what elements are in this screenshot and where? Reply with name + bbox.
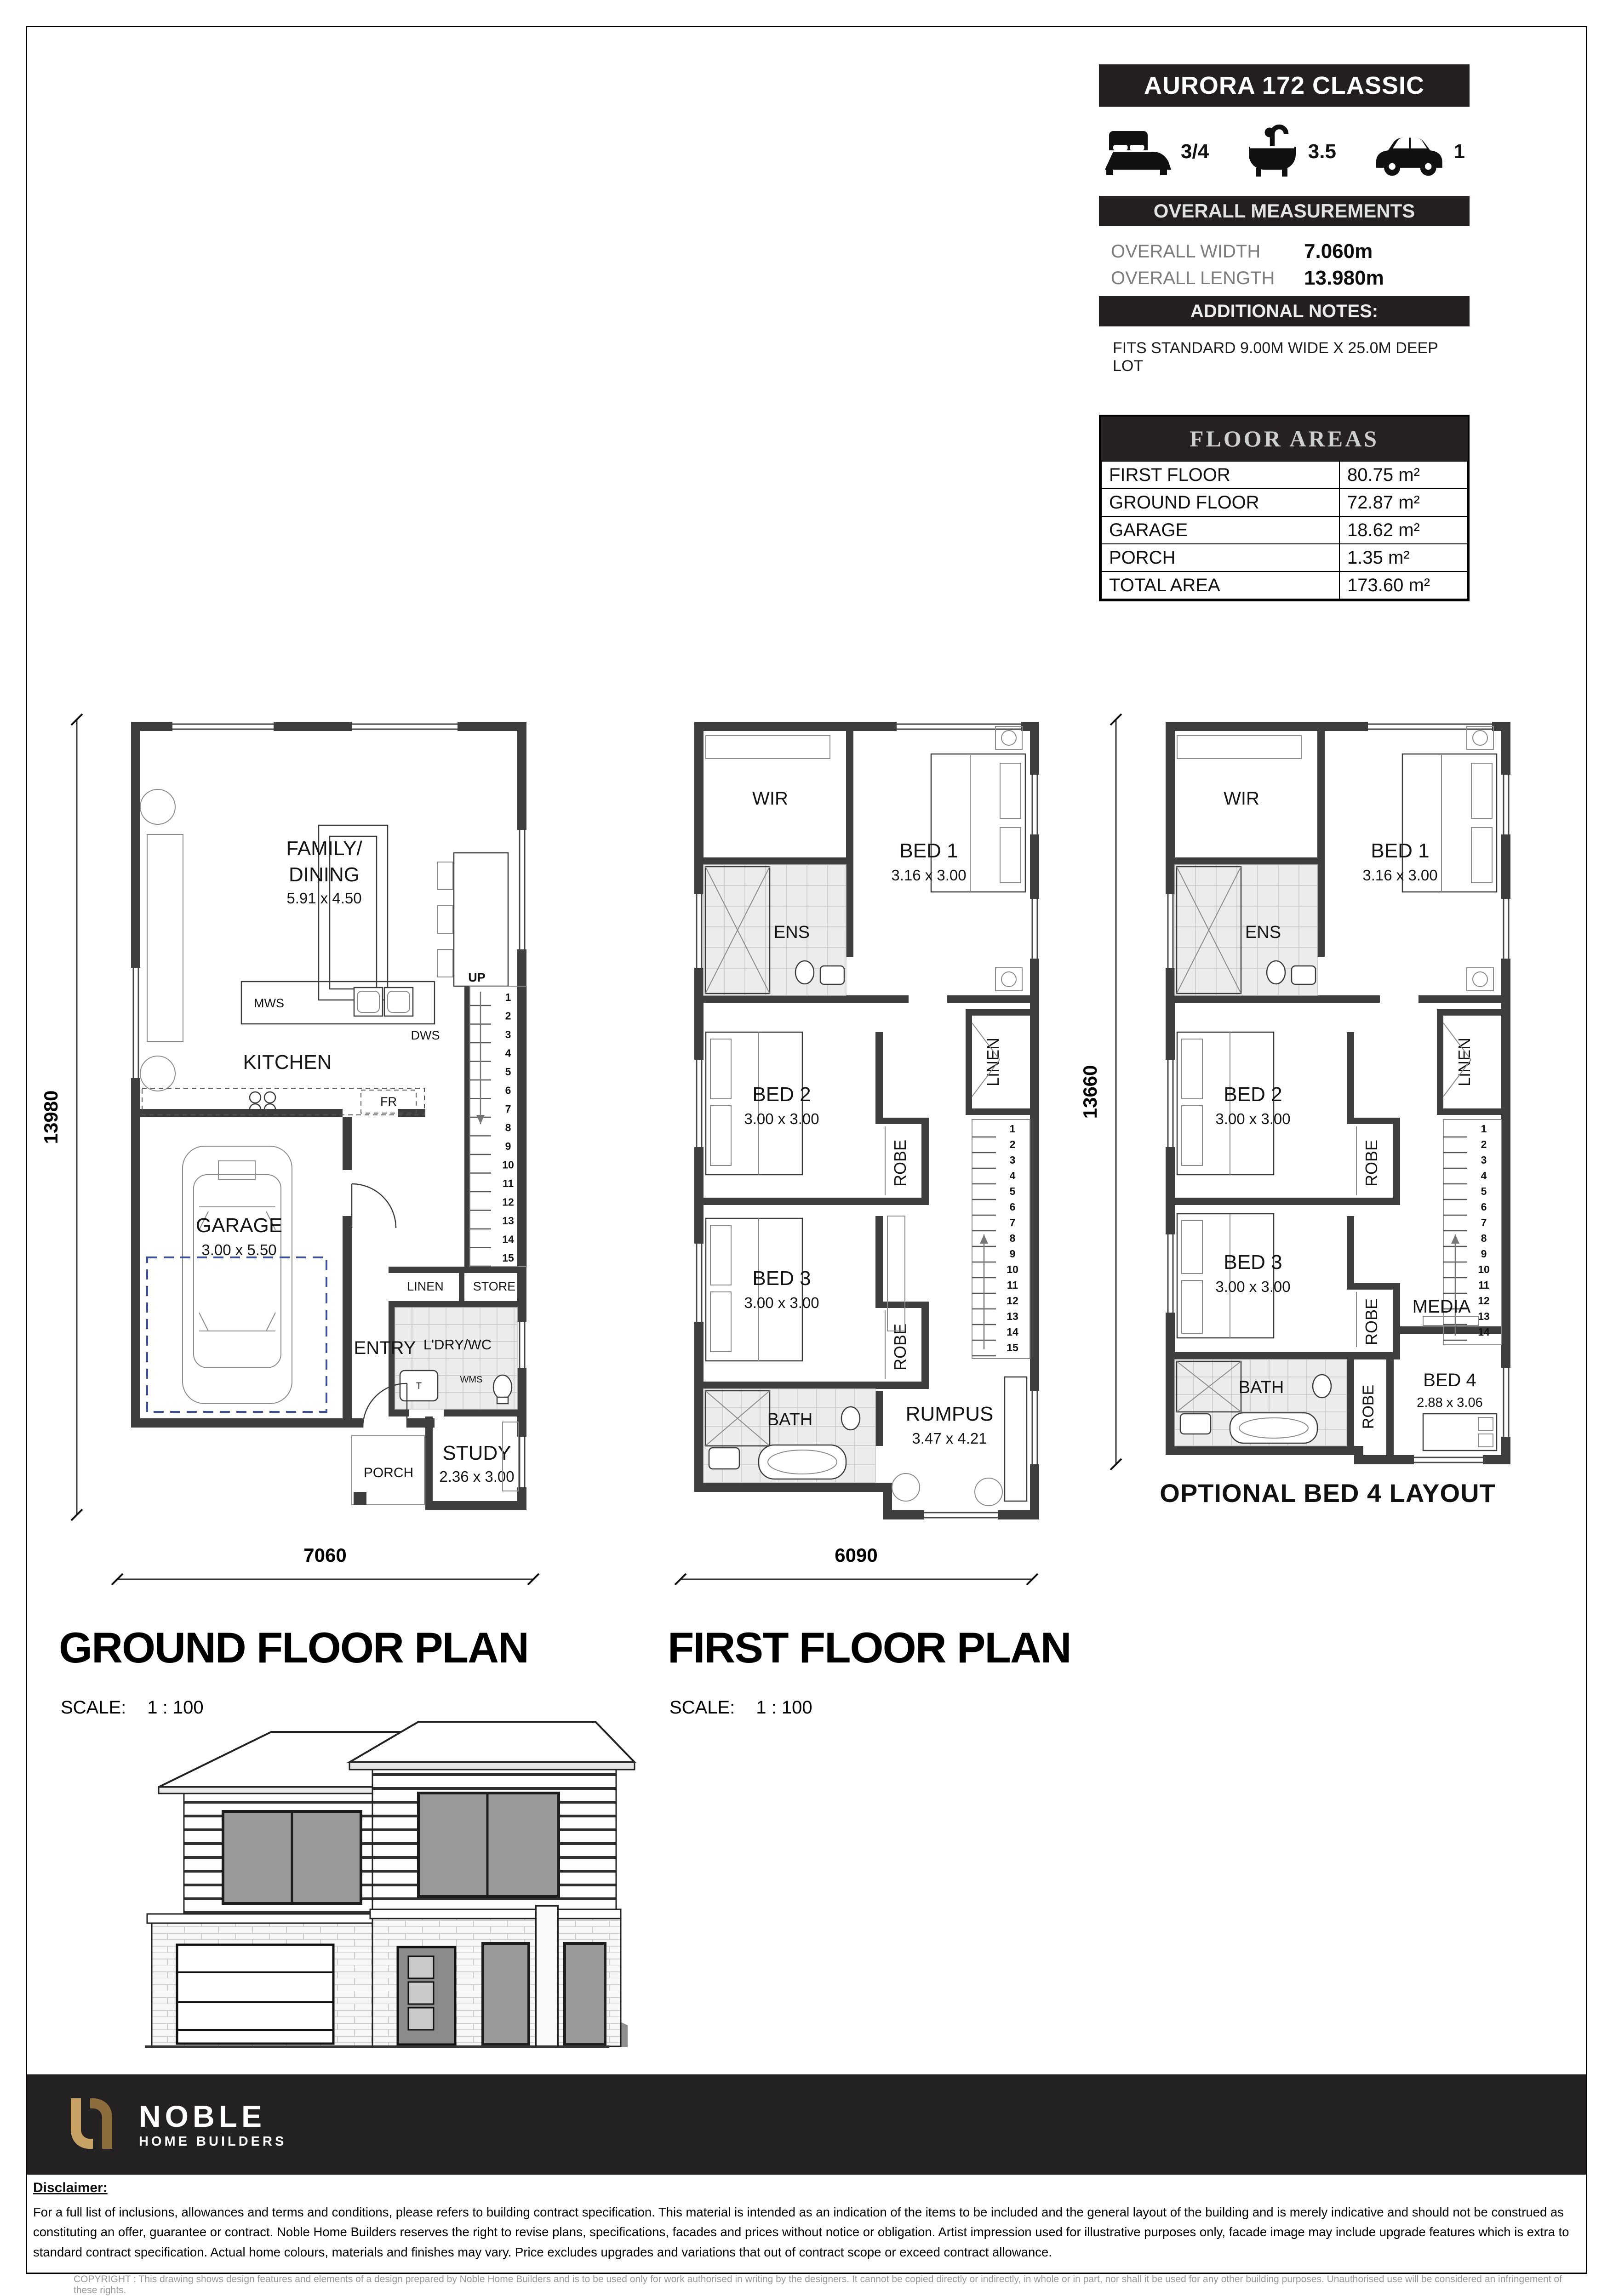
floor-areas-box: FLOOR AREAS FIRST FLOOR 80.75 m² GROUND … bbox=[1099, 415, 1470, 601]
overall-width-row: OVERALL WIDTH 7.060m bbox=[1111, 238, 1470, 265]
optional-height-dimension: 13660 bbox=[1078, 713, 1133, 1471]
sink bbox=[354, 988, 383, 1016]
room-label: ENS bbox=[1245, 923, 1281, 942]
additional-notes-text: FITS STANDARD 9.00M WIDE X 25.0M DEEP LO… bbox=[1099, 326, 1470, 403]
study: STUDY 2.36 x 3.00 bbox=[439, 1422, 518, 1491]
svg-text:1: 1 bbox=[1481, 1123, 1487, 1135]
area-value: 72.87 m² bbox=[1339, 489, 1467, 516]
bedrooms-value: 3/4 bbox=[1181, 140, 1209, 163]
overall-length-label: OVERALL LENGTH bbox=[1111, 268, 1304, 289]
toilet bbox=[841, 1407, 860, 1430]
basin bbox=[709, 1448, 739, 1469]
svg-text:3: 3 bbox=[1010, 1154, 1016, 1166]
stats-row: 3/4 3.5 1 bbox=[1099, 107, 1470, 193]
svg-text:9: 9 bbox=[505, 1140, 511, 1152]
ensuite: ENS bbox=[1175, 865, 1317, 995]
svg-text:13: 13 bbox=[1478, 1310, 1490, 1322]
bed bbox=[1423, 1414, 1497, 1451]
car-outline bbox=[183, 1146, 292, 1404]
svg-text:5: 5 bbox=[505, 1066, 511, 1078]
room-size: 3.00 x 5.50 bbox=[201, 1241, 276, 1258]
dimension-value: 7060 bbox=[303, 1544, 346, 1566]
room-label: KITCHEN bbox=[243, 1051, 332, 1074]
room-label: RUMPUS bbox=[906, 1403, 994, 1425]
design-title: AURORA 172 CLASSIC bbox=[1099, 64, 1470, 107]
info-panel: AURORA 172 CLASSIC 3/4 3 bbox=[1099, 64, 1470, 601]
wir: WIR bbox=[706, 736, 830, 809]
bed1-room: BED 1 3.16 x 3.00 bbox=[1362, 726, 1497, 991]
basin bbox=[1180, 1414, 1211, 1434]
area-value: 80.75 m² bbox=[1339, 461, 1467, 489]
door-arc bbox=[352, 1184, 396, 1228]
overall-width-label: OVERALL WIDTH bbox=[1111, 241, 1304, 262]
stair-treads: 123456789101112131415 bbox=[470, 991, 514, 1266]
roof-right bbox=[349, 1722, 635, 1762]
svg-text:2: 2 bbox=[1481, 1138, 1487, 1150]
garage-value: 1 bbox=[1454, 140, 1465, 163]
plant-symbol bbox=[140, 789, 175, 824]
store-label: STORE bbox=[473, 1279, 516, 1293]
area-label: GROUND FLOOR bbox=[1101, 489, 1339, 516]
ensuite: ENS bbox=[704, 865, 846, 995]
toilet bbox=[1313, 1375, 1331, 1398]
robe-label: ROBE bbox=[1360, 1385, 1377, 1429]
svg-text:2: 2 bbox=[1010, 1138, 1016, 1150]
facade-elevation-image bbox=[133, 1708, 637, 2050]
bed4-room: BED 4 2.88 x 3.06 ROBE bbox=[1360, 1370, 1497, 1451]
porch-post bbox=[354, 1492, 366, 1505]
svg-text:1: 1 bbox=[1010, 1123, 1016, 1135]
cabinet bbox=[147, 834, 183, 1041]
svg-text:9: 9 bbox=[1010, 1248, 1016, 1260]
tall-window bbox=[483, 1943, 529, 2045]
sofa bbox=[1005, 1377, 1027, 1501]
car-icon bbox=[1372, 126, 1446, 177]
area-value: 173.60 m² bbox=[1339, 571, 1467, 599]
up-label: UP bbox=[468, 971, 486, 984]
room-label: BED 1 bbox=[899, 840, 958, 862]
svg-text:5: 5 bbox=[1481, 1185, 1487, 1197]
toilet bbox=[795, 961, 814, 984]
stair-treads: 123456789101112131415 bbox=[972, 1123, 1018, 1356]
area-value: 18.62 m² bbox=[1339, 516, 1467, 544]
toilet bbox=[1267, 961, 1285, 984]
robe-label: ROBE bbox=[1362, 1298, 1381, 1345]
table-row: GROUND FLOOR 72.87 m² bbox=[1101, 489, 1467, 516]
linen-label: LINEN bbox=[407, 1279, 444, 1293]
scale-value: 1 : 100 bbox=[756, 1697, 812, 1718]
table-row: PORCH 1.35 m² bbox=[1101, 544, 1467, 571]
room-label: BATH bbox=[1239, 1378, 1284, 1397]
optional-floor-plan-drawing: WIR ENS BED 1 3.16 x 3.00 BED 2 3.00 x 3… bbox=[1138, 710, 1517, 1478]
family-dining-room: FAMILY/ DINING 5.91 x 4.50 bbox=[140, 789, 508, 1091]
svg-text:14: 14 bbox=[502, 1234, 514, 1245]
first-floor-plan-drawing: WIR ENS BED 1 3.16 x 3.00 BED 2 3.00 x 3… bbox=[667, 710, 1046, 1538]
optional-caption: OPTIONAL BED 4 LAYOUT bbox=[1138, 1478, 1517, 1508]
first-floor-title: FIRST FLOOR PLAN bbox=[668, 1623, 1071, 1673]
svg-text:7: 7 bbox=[505, 1103, 511, 1115]
porch-label: PORCH bbox=[364, 1465, 413, 1480]
room-size: 3.00 x 3.00 bbox=[1215, 1110, 1290, 1127]
room-label: BATH bbox=[767, 1410, 813, 1429]
area-label: GARAGE bbox=[1101, 516, 1339, 544]
plant-symbol bbox=[892, 1474, 920, 1501]
ground-line bbox=[145, 2045, 609, 2048]
additional-notes-header: ADDITIONAL NOTES: bbox=[1099, 296, 1470, 326]
linen-label: LINEN bbox=[1455, 1038, 1474, 1086]
robe-label: ROBE bbox=[891, 1140, 909, 1187]
staircase: 123456789101112131415 bbox=[972, 1119, 1030, 1359]
table-row: TOTAL AREA 173.60 m² bbox=[1101, 571, 1467, 599]
overall-length-value: 13.980m bbox=[1304, 267, 1384, 290]
wms-label: WMS bbox=[460, 1375, 483, 1385]
room-size: 3.16 x 3.00 bbox=[1362, 867, 1437, 884]
noble-monogram-icon bbox=[57, 2090, 126, 2159]
svg-text:4: 4 bbox=[505, 1047, 511, 1059]
garage: GARAGE 3.00 x 5.50 bbox=[147, 1146, 396, 1412]
svg-text:7: 7 bbox=[1010, 1217, 1016, 1228]
plan-sheet-page: { "panel": { "title": "AURORA 172 CLASSI… bbox=[0, 0, 1613, 2281]
bedrooms-stat: 3/4 bbox=[1104, 127, 1209, 177]
svg-text:8: 8 bbox=[1010, 1232, 1016, 1244]
svg-text:11: 11 bbox=[503, 1177, 514, 1189]
tall-window bbox=[565, 1943, 605, 2045]
bed-icon bbox=[1104, 127, 1173, 177]
ground-floor-title: GROUND FLOOR PLAN bbox=[59, 1623, 528, 1673]
first-scale: SCALE:1 : 100 bbox=[669, 1697, 812, 1718]
brand-logo: NOBLE HOME BUILDERS bbox=[57, 2090, 286, 2159]
wir: WIR bbox=[1177, 736, 1301, 809]
first-width-dimension: 6090 bbox=[667, 1542, 1046, 1595]
dimension-value: 13660 bbox=[1079, 1065, 1101, 1119]
pier bbox=[536, 1906, 558, 2046]
basin bbox=[820, 966, 844, 984]
room-label: WIR bbox=[752, 788, 788, 809]
svg-text:7: 7 bbox=[1481, 1217, 1487, 1228]
basin bbox=[1292, 966, 1316, 984]
room-size: 3.16 x 3.00 bbox=[891, 867, 966, 884]
media: MEDIA bbox=[1413, 1296, 1478, 1325]
room-label: MEDIA bbox=[1413, 1296, 1471, 1317]
robe-label: ROBE bbox=[1362, 1140, 1381, 1187]
room-label: ENS bbox=[774, 923, 810, 942]
garage-door bbox=[177, 1945, 333, 2044]
scale-label: SCALE: bbox=[669, 1697, 735, 1718]
mws-label: MWS bbox=[254, 996, 284, 1010]
table-row: FIRST FLOOR 80.75 m² bbox=[1101, 461, 1467, 489]
brand-text: NOBLE HOME BUILDERS bbox=[139, 2101, 286, 2148]
room-label: BED 3 bbox=[752, 1267, 811, 1290]
room-label: GARAGE bbox=[196, 1214, 282, 1237]
area-value: 1.35 m² bbox=[1339, 544, 1467, 571]
room-size: 3.00 x 3.00 bbox=[1215, 1278, 1290, 1295]
dimension-value: 13980 bbox=[40, 1091, 62, 1144]
room-label: WIR bbox=[1224, 788, 1259, 809]
brand-subtitle: HOME BUILDERS bbox=[139, 2135, 286, 2148]
dws-label: DWS bbox=[411, 1028, 440, 1042]
svg-text:2: 2 bbox=[505, 1010, 511, 1022]
bed bbox=[706, 1218, 802, 1361]
svg-text:15: 15 bbox=[1007, 1342, 1018, 1354]
svg-text:11: 11 bbox=[1478, 1279, 1490, 1291]
svg-text:8: 8 bbox=[505, 1122, 511, 1134]
svg-text:10: 10 bbox=[1478, 1263, 1490, 1275]
overall-width-value: 7.060m bbox=[1304, 240, 1373, 263]
room-size: 5.91 x 4.50 bbox=[286, 890, 361, 907]
area-label: PORCH bbox=[1101, 544, 1339, 571]
bathrooms-value: 3.5 bbox=[1308, 140, 1336, 163]
svg-text:12: 12 bbox=[502, 1196, 514, 1208]
copyright-text: COPYRIGHT : This drawing shows design fe… bbox=[33, 2274, 1576, 2296]
room-label: STUDY bbox=[442, 1442, 511, 1464]
svg-text:12: 12 bbox=[1478, 1295, 1490, 1307]
trough-label: T bbox=[416, 1381, 422, 1391]
linen-label: LINEN bbox=[984, 1038, 1002, 1086]
overall-length-row: OVERALL LENGTH 13.980m bbox=[1111, 265, 1470, 291]
ground-floor-plan-drawing: FAMILY/ DINING 5.91 x 4.50 MWS DWS KITCH… bbox=[103, 710, 547, 1524]
table-row: GARAGE 18.62 m² bbox=[1101, 516, 1467, 544]
footer-brand-bar: NOBLE HOME BUILDERS bbox=[27, 2074, 1586, 2175]
room-label: BED 1 bbox=[1371, 840, 1429, 862]
room-label: BED 3 bbox=[1224, 1251, 1282, 1274]
walls bbox=[1166, 722, 1510, 1464]
measurements-rows: OVERALL WIDTH 7.060m OVERALL LENGTH 13.9… bbox=[1099, 226, 1470, 296]
room-size: 2.88 x 3.06 bbox=[1417, 1395, 1483, 1410]
svg-text:11: 11 bbox=[1007, 1279, 1018, 1291]
bathrooms-stat: 3.5 bbox=[1245, 124, 1336, 179]
scale-label: SCALE: bbox=[61, 1697, 126, 1718]
svg-text:10: 10 bbox=[1007, 1263, 1018, 1275]
fridge-label: FR bbox=[380, 1095, 397, 1108]
room-label: BED 4 bbox=[1423, 1370, 1476, 1390]
cabinet bbox=[887, 1216, 905, 1331]
svg-text:12: 12 bbox=[1007, 1295, 1018, 1307]
svg-text:3: 3 bbox=[1481, 1154, 1487, 1166]
room-size: 3.00 x 3.00 bbox=[744, 1110, 819, 1127]
brand-name: NOBLE bbox=[139, 2101, 286, 2131]
svg-text:8: 8 bbox=[1481, 1232, 1487, 1244]
ground-width-dimension: 7060 bbox=[103, 1542, 547, 1595]
room-size: 2.36 x 3.00 bbox=[439, 1468, 514, 1485]
svg-text:14: 14 bbox=[1007, 1326, 1018, 1338]
dining-table bbox=[454, 853, 508, 986]
svg-text:4: 4 bbox=[1010, 1170, 1016, 1182]
garage-space-dashed bbox=[147, 1257, 326, 1412]
svg-text:4: 4 bbox=[1481, 1170, 1487, 1182]
laundry-label: L'DRY/WC bbox=[423, 1336, 492, 1353]
room-label: FAMILY/ bbox=[286, 837, 362, 860]
ground-height-dimension: 13980 bbox=[39, 713, 94, 1522]
bed1-room: BED 1 3.16 x 3.00 bbox=[891, 726, 1025, 991]
svg-text:9: 9 bbox=[1481, 1248, 1487, 1260]
measurements-header: OVERALL MEASUREMENTS bbox=[1099, 196, 1470, 226]
room-label: BED 2 bbox=[1224, 1083, 1282, 1106]
bed bbox=[1177, 1214, 1274, 1338]
svg-text:3: 3 bbox=[505, 1028, 511, 1040]
svg-text:10: 10 bbox=[502, 1159, 514, 1171]
area-label: TOTAL AREA bbox=[1101, 571, 1339, 599]
svg-text:5: 5 bbox=[1010, 1185, 1016, 1197]
room-label: DINING bbox=[289, 863, 360, 886]
room-label: BED 2 bbox=[752, 1083, 811, 1106]
bathroom: BATH bbox=[704, 1389, 875, 1483]
dimension-value: 6090 bbox=[835, 1544, 877, 1566]
disclaimer-block: Disclaimer: For a full list of inclusion… bbox=[33, 2180, 1576, 2296]
disclaimer-heading: Disclaimer: bbox=[33, 2180, 1576, 2196]
porch: PORCH bbox=[352, 1436, 424, 1505]
plant-symbol bbox=[140, 1056, 175, 1091]
bath-icon bbox=[1245, 124, 1300, 179]
bathtub bbox=[1230, 1413, 1317, 1443]
plant-symbol bbox=[975, 1478, 1002, 1506]
kitchen: MWS DWS KITCHEN FR bbox=[142, 982, 440, 1115]
svg-text:15: 15 bbox=[502, 1252, 514, 1264]
garage-stat: 1 bbox=[1372, 126, 1465, 177]
svg-text:13: 13 bbox=[1007, 1310, 1018, 1322]
linen: LINEN bbox=[972, 1023, 1002, 1097]
room-size: 3.00 x 3.00 bbox=[744, 1294, 819, 1311]
disclaimer-text: For a full list of inclusions, allowance… bbox=[33, 2202, 1576, 2262]
floor-areas-header: FLOOR AREAS bbox=[1101, 417, 1468, 461]
svg-text:14: 14 bbox=[1478, 1326, 1490, 1338]
linen: LINEN bbox=[1443, 1023, 1474, 1097]
bathroom: BATH bbox=[1175, 1359, 1347, 1446]
svg-text:13: 13 bbox=[502, 1215, 514, 1227]
svg-text:6: 6 bbox=[1481, 1201, 1487, 1213]
room-size: 3.47 x 4.21 bbox=[912, 1430, 987, 1447]
svg-text:1: 1 bbox=[505, 991, 511, 1003]
room-label: ENTRY bbox=[354, 1338, 416, 1358]
svg-text:6: 6 bbox=[1010, 1201, 1016, 1213]
laundry-wc: L'DRY/WC WMS T bbox=[395, 1308, 517, 1409]
floor-areas-table: FIRST FLOOR 80.75 m² GROUND FLOOR 72.87 … bbox=[1101, 461, 1468, 600]
toilet bbox=[493, 1375, 512, 1399]
svg-text:6: 6 bbox=[505, 1085, 511, 1097]
area-label: FIRST FLOOR bbox=[1101, 461, 1339, 489]
